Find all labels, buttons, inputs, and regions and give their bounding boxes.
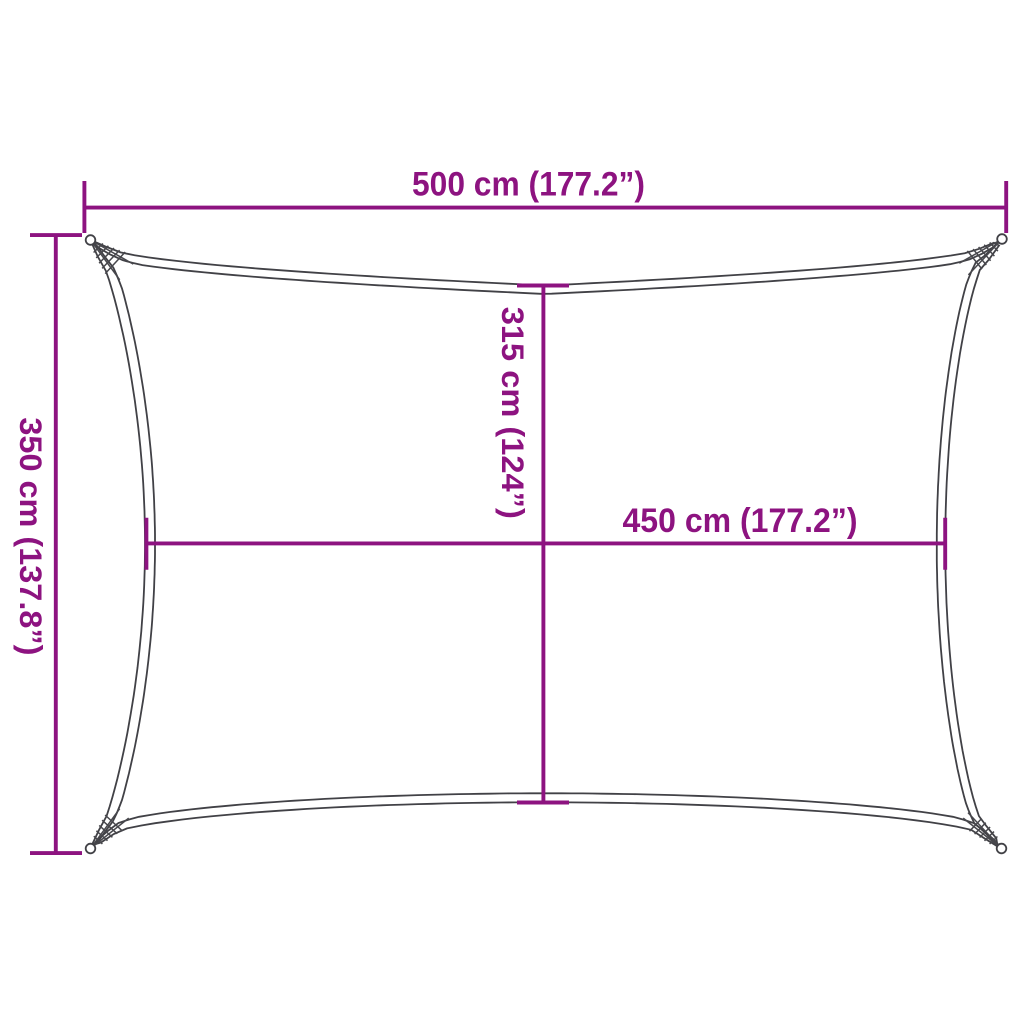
svg-text:450 cm (177.2”): 450 cm (177.2”) xyxy=(623,502,858,540)
svg-text:350 cm (137.8”): 350 cm (137.8”) xyxy=(13,417,49,655)
svg-text:500 cm (177.2”): 500 cm (177.2”) xyxy=(412,165,645,203)
svg-text:315 cm (124”): 315 cm (124”) xyxy=(495,307,531,519)
